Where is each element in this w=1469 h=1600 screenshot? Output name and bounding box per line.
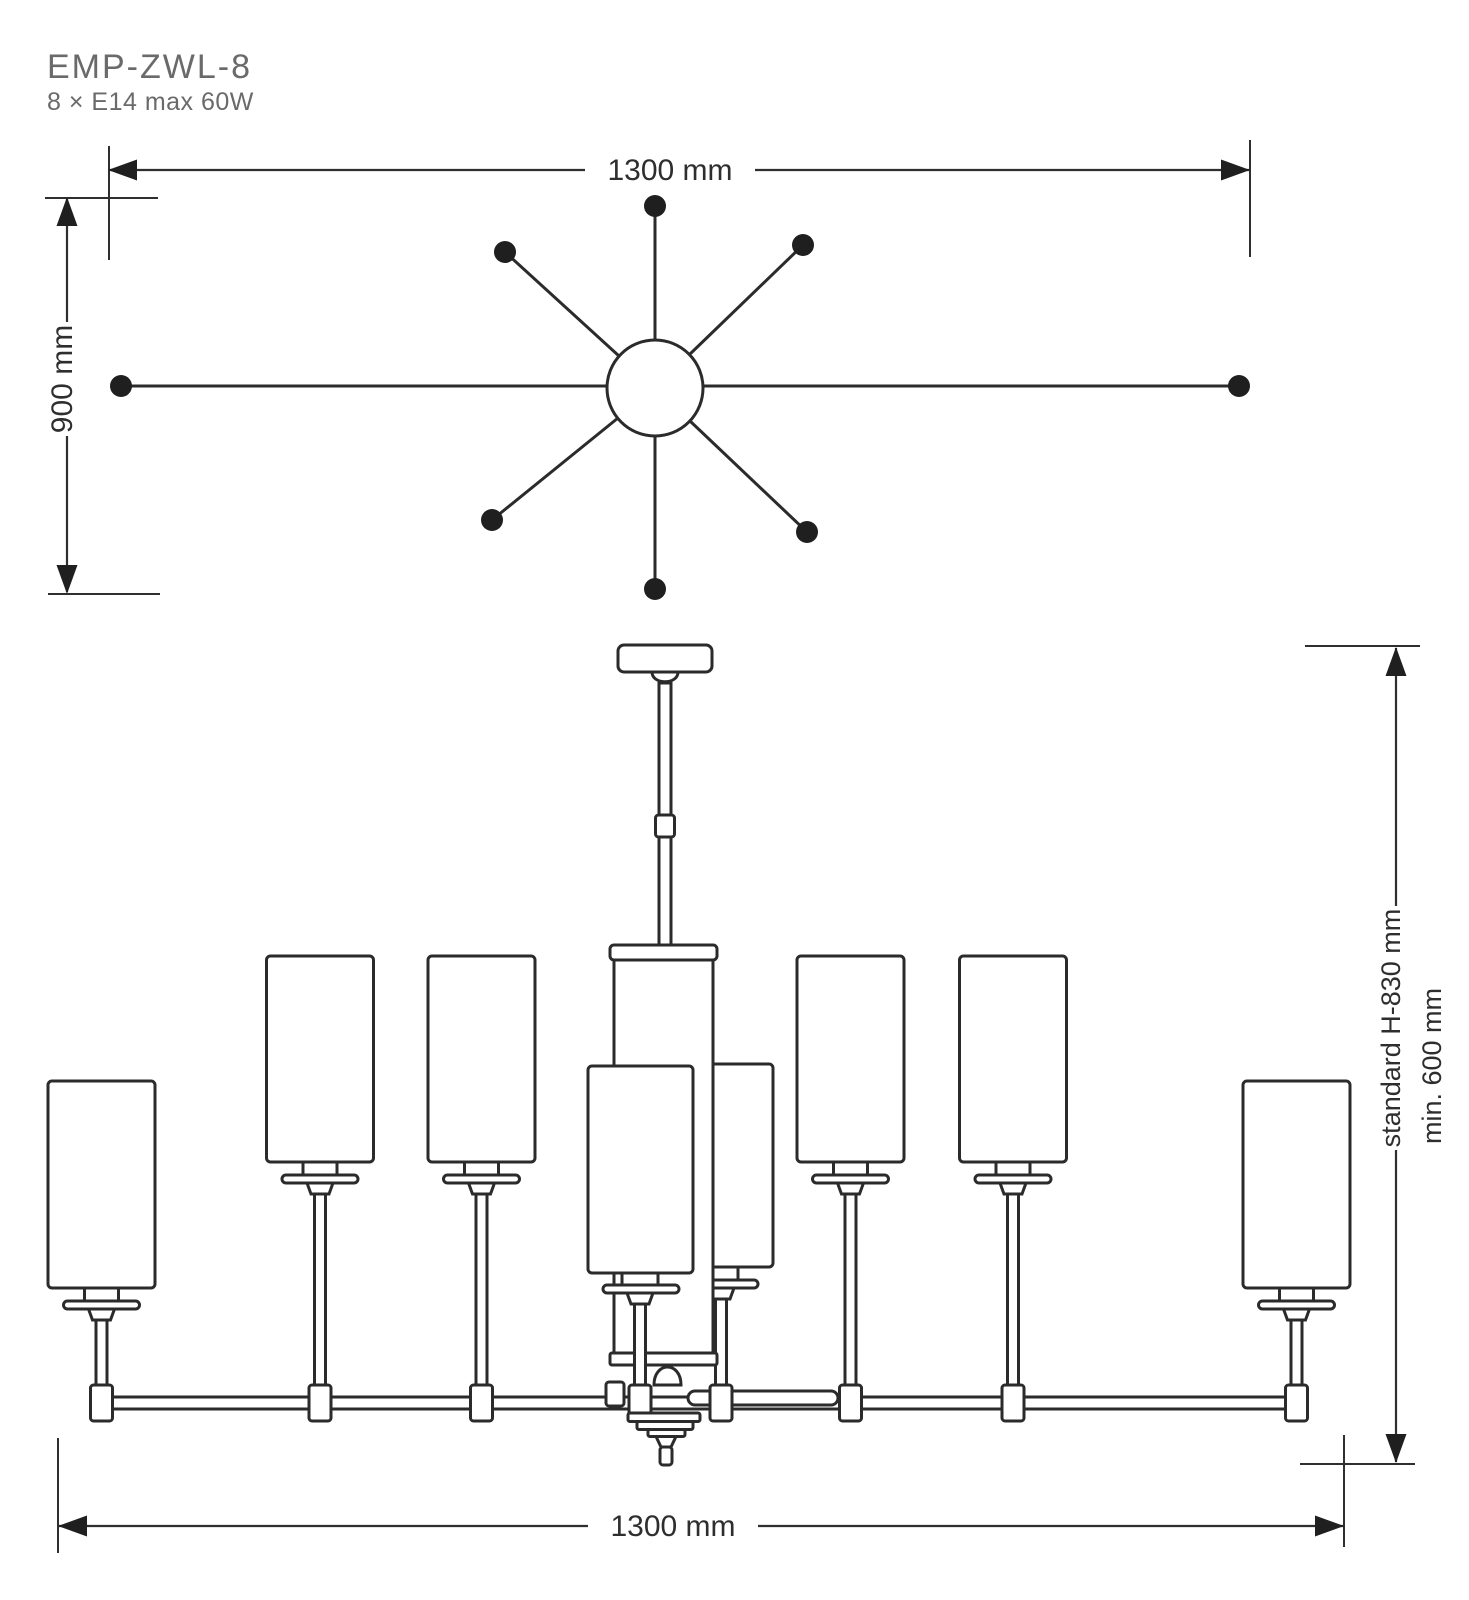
- plan-width-label: 1300 mm: [607, 154, 732, 187]
- lamp-arm: [1243, 1081, 1350, 1385]
- dimension-elevation-width: 1300 mm: [58, 1435, 1344, 1553]
- height-min-label: min. 600 mm: [1417, 988, 1447, 1144]
- body-top-plate: [610, 945, 717, 960]
- finial-tip: [660, 1447, 672, 1465]
- arrowhead-up: [1386, 647, 1407, 676]
- rod-coupling: [656, 815, 675, 837]
- height-standard-label: standard H-830 mm: [1376, 909, 1406, 1148]
- arrowhead-right: [1315, 1516, 1344, 1537]
- lamp-arm: [960, 956, 1067, 1385]
- lampshade: [588, 1066, 693, 1273]
- lampshade: [960, 956, 1067, 1162]
- arm-bar: [96, 1382, 1299, 1409]
- diagram-page: EMP-ZWL-8 8 × E14 max 60W: [0, 0, 1469, 1600]
- bottom-finial: [628, 1413, 700, 1465]
- plan-center-hub: [607, 340, 703, 436]
- elevation-view: [48, 645, 1350, 1465]
- arrowhead-down: [57, 565, 78, 594]
- dimension-plan-depth: 900 mm: [45, 197, 160, 594]
- canopy-dome: [652, 672, 678, 682]
- hub-dome: [654, 1367, 681, 1385]
- dimension-height: standard H-830 mm min. 600 mm: [1300, 646, 1447, 1464]
- technical-drawing: 1300 mm 900 mm: [0, 0, 1469, 1600]
- ceiling-canopy: [618, 645, 712, 672]
- suspension-rod-lower: [659, 837, 671, 945]
- lampshade: [48, 1081, 155, 1288]
- dimension-plan-width: 1300 mm: [108, 140, 1250, 260]
- arrowhead-down: [1386, 1434, 1407, 1463]
- lampshade: [267, 956, 374, 1162]
- lamp-arm: [428, 956, 535, 1385]
- lampshade: [428, 956, 535, 1162]
- arrowhead-left: [108, 160, 137, 181]
- suspension-rod-upper: [659, 683, 671, 815]
- arrowhead-up: [57, 197, 78, 226]
- plan-depth-label: 900 mm: [46, 325, 79, 433]
- lamp-arm: [797, 956, 904, 1385]
- plan-view: [110, 195, 1250, 600]
- arm-bar-hub-block: [606, 1382, 624, 1406]
- elevation-width-label: 1300 mm: [610, 1510, 735, 1543]
- lampshade: [797, 956, 904, 1162]
- body-collar: [610, 1353, 717, 1365]
- arrowhead-left: [58, 1516, 87, 1537]
- lamp-arm: [267, 956, 374, 1385]
- arrowhead-right: [1221, 160, 1250, 181]
- lamp-arm: [48, 1081, 155, 1385]
- lampshade: [1243, 1081, 1350, 1288]
